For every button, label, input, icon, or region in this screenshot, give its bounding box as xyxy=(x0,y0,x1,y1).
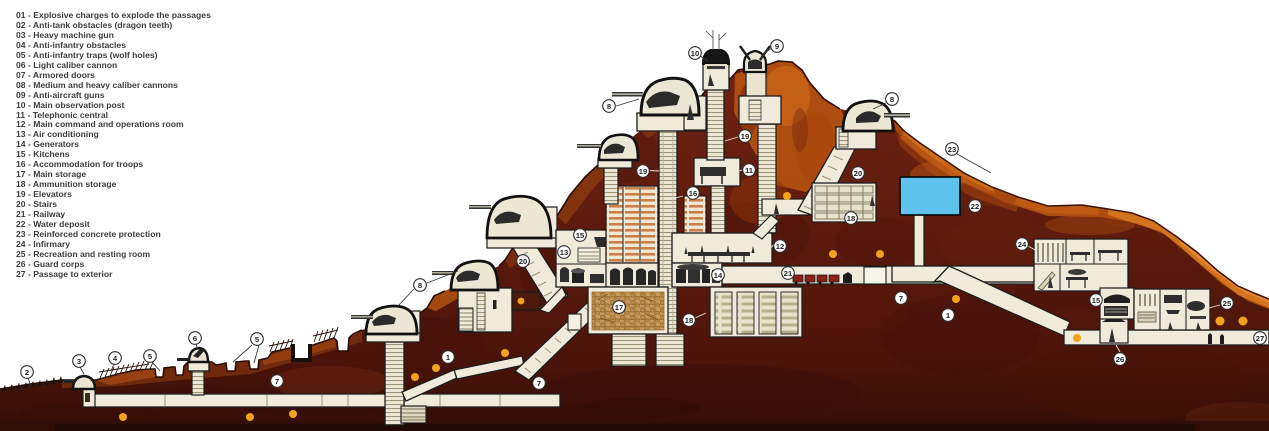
svg-text:23: 23 xyxy=(948,145,956,154)
svg-text:8: 8 xyxy=(607,102,611,111)
svg-text:20: 20 xyxy=(519,257,527,266)
svg-text:24: 24 xyxy=(1018,240,1027,249)
svg-text:15: 15 xyxy=(1092,296,1101,305)
svg-text:7: 7 xyxy=(537,379,541,388)
svg-text:9: 9 xyxy=(775,42,779,51)
svg-text:2: 2 xyxy=(25,368,29,377)
svg-text:8: 8 xyxy=(890,95,894,104)
svg-text:26: 26 xyxy=(1116,355,1124,364)
svg-text:10: 10 xyxy=(691,49,699,58)
svg-text:12: 12 xyxy=(776,242,784,251)
svg-text:21: 21 xyxy=(784,269,793,278)
svg-text:27: 27 xyxy=(1256,334,1264,343)
svg-text:19: 19 xyxy=(741,132,749,141)
svg-text:8: 8 xyxy=(418,281,422,290)
svg-text:18: 18 xyxy=(685,316,693,325)
svg-text:16: 16 xyxy=(689,189,697,198)
svg-text:22: 22 xyxy=(971,202,979,211)
svg-text:14: 14 xyxy=(714,271,723,280)
svg-text:7: 7 xyxy=(899,294,903,303)
svg-text:11: 11 xyxy=(745,166,754,175)
svg-text:6: 6 xyxy=(193,334,197,343)
svg-text:20: 20 xyxy=(854,169,862,178)
svg-text:13: 13 xyxy=(560,248,568,257)
svg-text:25: 25 xyxy=(1223,299,1232,308)
svg-text:17: 17 xyxy=(615,303,623,312)
svg-text:19: 19 xyxy=(639,167,647,176)
svg-text:18: 18 xyxy=(847,214,855,223)
svg-text:15: 15 xyxy=(576,231,585,240)
svg-text:7: 7 xyxy=(275,377,279,386)
svg-text:3: 3 xyxy=(77,357,81,366)
